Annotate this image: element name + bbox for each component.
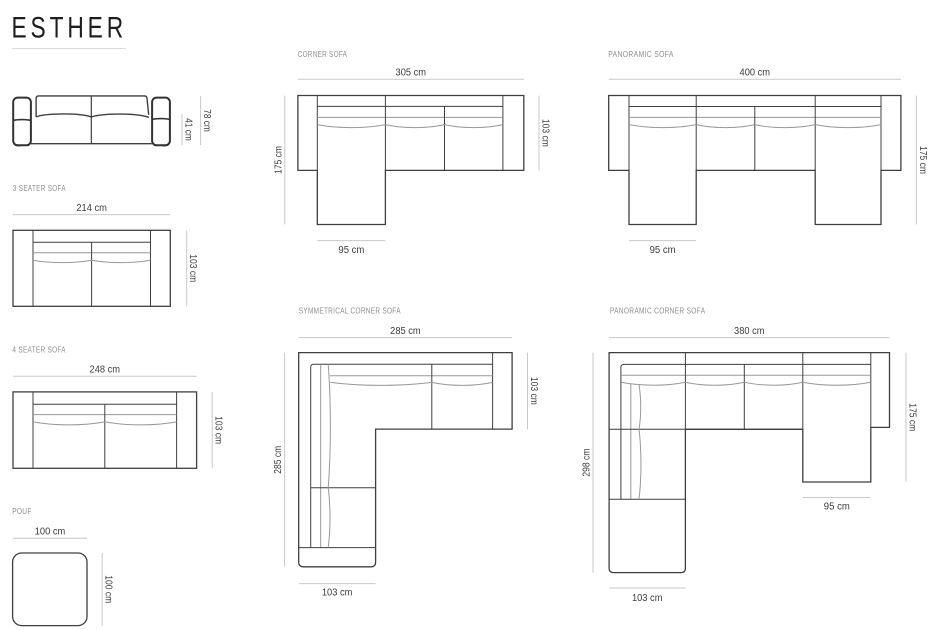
svg-text:CORNER SOFA: CORNER SOFA	[298, 49, 348, 59]
svg-text:ESTHER: ESTHER	[12, 12, 128, 45]
svg-text:78 cm: 78 cm	[201, 109, 212, 132]
svg-text:4 SEATER SOFA: 4 SEATER SOFA	[12, 344, 66, 354]
svg-text:PANORAMIC SOFA: PANORAMIC SOFA	[608, 49, 674, 59]
svg-text:175 cm: 175 cm	[907, 403, 918, 431]
svg-text:95 cm: 95 cm	[650, 245, 676, 256]
svg-text:103 cm: 103 cm	[322, 588, 353, 599]
svg-text:POUF: POUF	[12, 506, 32, 516]
svg-text:41 cm: 41 cm	[183, 118, 194, 141]
svg-text:PANORAMIC CORNER SOFA: PANORAMIC CORNER SOFA	[610, 305, 706, 315]
svg-text:400 cm: 400 cm	[740, 68, 771, 79]
svg-text:305 cm: 305 cm	[396, 68, 427, 79]
svg-text:100 cm: 100 cm	[103, 575, 114, 603]
svg-text:95 cm: 95 cm	[824, 502, 850, 513]
svg-text:298 cm: 298 cm	[582, 449, 593, 477]
svg-text:175 cm: 175 cm	[917, 146, 928, 174]
svg-text:100 cm: 100 cm	[35, 527, 66, 538]
svg-text:3 SEATER SOFA: 3 SEATER SOFA	[13, 183, 66, 193]
svg-text:103 cm: 103 cm	[187, 254, 198, 282]
svg-text:285 cm: 285 cm	[273, 446, 284, 474]
svg-text:103 cm: 103 cm	[632, 593, 663, 604]
svg-text:103 cm: 103 cm	[213, 416, 224, 444]
svg-text:285 cm: 285 cm	[390, 326, 421, 337]
svg-text:175 cm: 175 cm	[273, 146, 284, 174]
svg-text:214 cm: 214 cm	[76, 203, 107, 214]
svg-text:SYMMETRICAL CORNER SOFA: SYMMETRICAL CORNER SOFA	[299, 305, 401, 315]
svg-text:248 cm: 248 cm	[90, 365, 121, 376]
svg-text:380 cm: 380 cm	[734, 326, 765, 337]
svg-text:103 cm: 103 cm	[528, 377, 539, 405]
svg-text:95 cm: 95 cm	[338, 245, 364, 256]
svg-text:103 cm: 103 cm	[540, 119, 551, 147]
